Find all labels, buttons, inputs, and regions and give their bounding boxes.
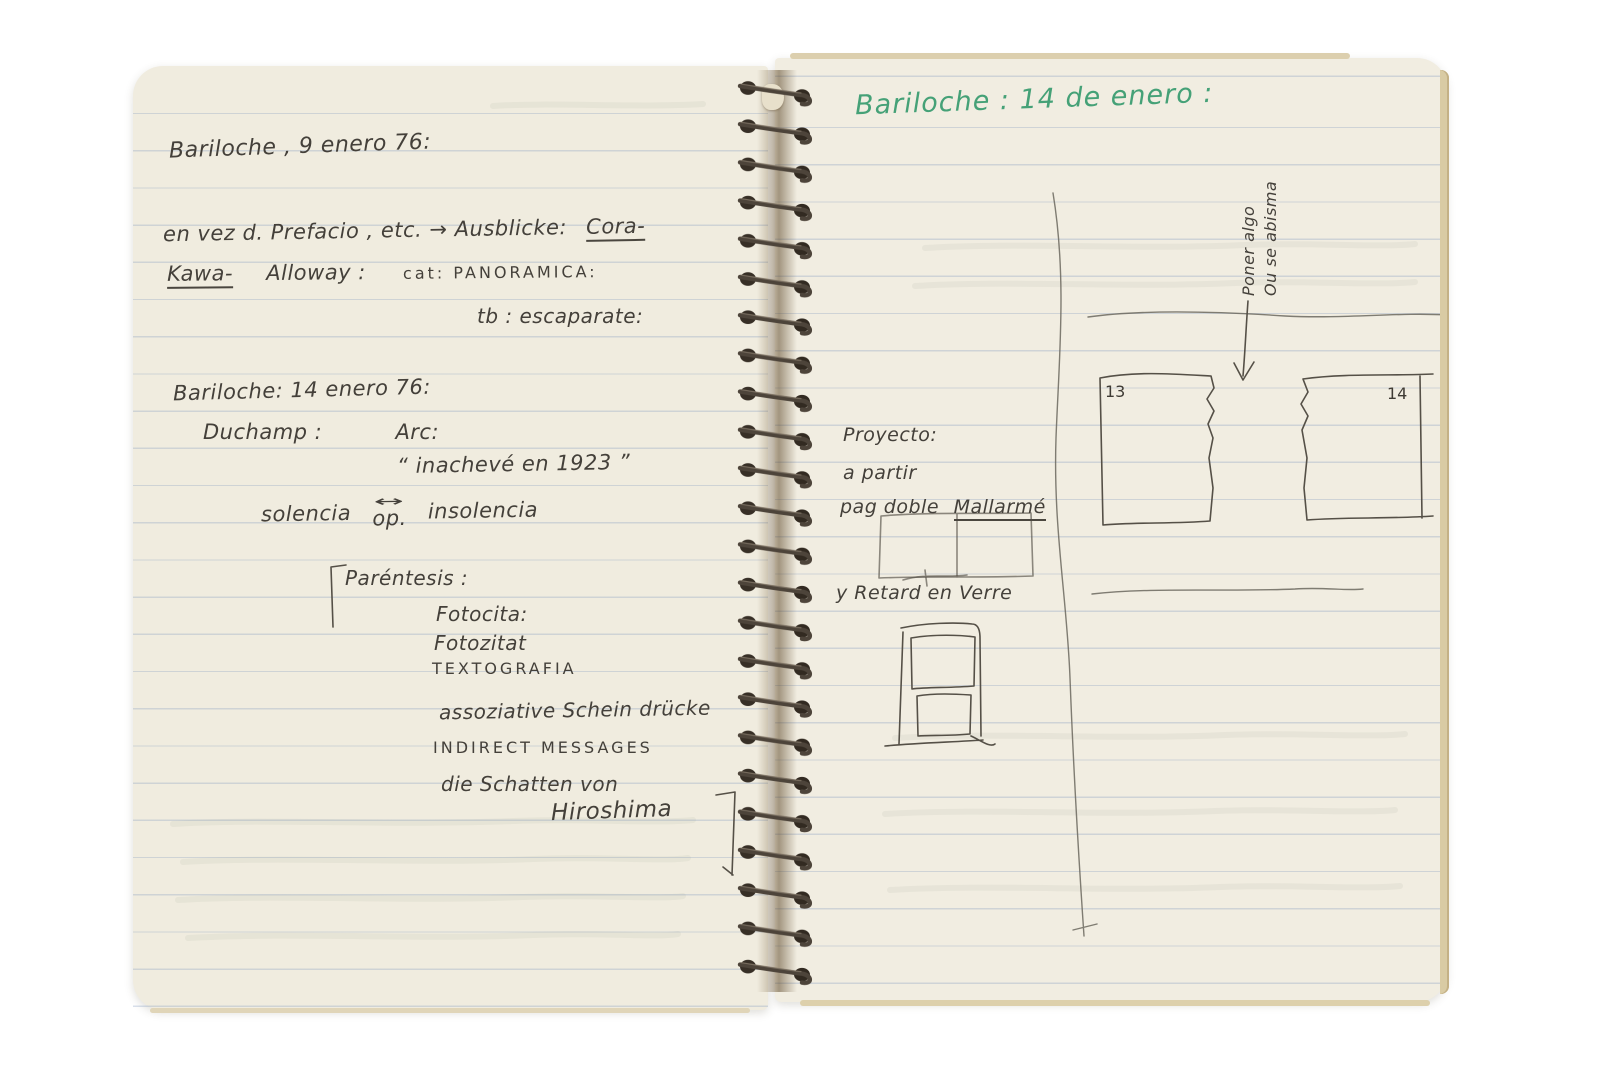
ghost-text-row	[890, 886, 1400, 890]
arc-word: Arc:	[395, 420, 439, 444]
ghost-text-row	[885, 810, 1395, 814]
large-glass-sketch	[885, 623, 995, 746]
rotated-note-line2: Ou se abisma	[1260, 116, 1282, 296]
cora-word: Cora-	[586, 214, 646, 242]
left-page: Bariloche , 9 enero 76: en vez d. Prefac…	[133, 66, 768, 1010]
proyecto-note: Proyecto:	[843, 424, 937, 446]
textografia-note: TEXTOGRAFIA	[432, 659, 577, 678]
a-partir-note: a partir	[843, 462, 917, 484]
pag-doble-words: pag doble	[840, 496, 939, 518]
inacheve-quote: “ inachevé en 1923 ”	[397, 450, 631, 478]
rotated-margin-note: Poner algo Ou se abisma	[1238, 116, 1282, 296]
page-stack-edge-bottom-right	[800, 1000, 1430, 1006]
parentesis-note: Paréntesis :	[345, 566, 468, 590]
duchamp-note: Duchamp : Arc:	[203, 420, 439, 444]
horizontal-line-mid-sketch	[1092, 588, 1363, 594]
page-stack-edge-right	[1440, 70, 1449, 994]
right-page-sketches	[775, 58, 1447, 1006]
vertical-divider-sketch	[1053, 193, 1097, 936]
kawa-word: Kawa-	[167, 261, 233, 289]
page-13-label: 13	[1105, 382, 1125, 401]
schatten-note: die Schatten von	[441, 772, 618, 796]
solencia-note: solencia ↔ op. insolencia	[261, 494, 539, 533]
double-arrow-icon: ↔	[373, 496, 405, 507]
rotated-note-line1: Poner algo	[1238, 116, 1260, 296]
op-with-arrow: ↔ op.	[372, 496, 407, 531]
spiral-binding	[726, 74, 821, 986]
right-page: Bariloche : 14 de enero : Poner algo Ou …	[775, 58, 1447, 1002]
escaparate-note: tb : escaparate:	[477, 304, 643, 328]
indirect-messages-note: INDIRECT MESSAGES	[433, 738, 653, 757]
solencia-word: solencia	[261, 501, 352, 527]
page-14-label: 14	[1387, 384, 1407, 403]
page-stack-edge-bottom-left	[150, 1008, 750, 1013]
mallarme-word: Mallarmé	[954, 496, 1046, 521]
pag-doble-note: pag doble Mallarmé	[840, 496, 1046, 518]
retard-note: y Retard en Verre	[836, 582, 1012, 604]
insolencia-word: insolencia	[428, 498, 539, 524]
assoziative-note: assoziative Schein drücke	[439, 696, 711, 725]
left-page-sketches	[133, 66, 768, 1014]
ghost-text-row	[188, 934, 678, 938]
spiral-coils	[726, 74, 821, 986]
ghost-text-row	[493, 104, 703, 106]
alloway-word: Alloway :	[266, 260, 366, 285]
ghost-text-row	[183, 858, 688, 862]
fotozitat-note: Fotozitat	[434, 631, 526, 655]
horizontal-line-top-sketch	[1088, 312, 1447, 317]
ghost-text-row	[178, 896, 683, 900]
panoramica-note: cat: PANORAMICA:	[403, 262, 598, 283]
page-stack-edge-top-right	[790, 53, 1350, 59]
double-page-spread-sketch	[879, 513, 1033, 578]
ghost-text-row	[915, 282, 1415, 286]
fotocita-note: Fotocita:	[436, 602, 528, 626]
ghost-text-row	[925, 244, 1415, 248]
open-bracket-sketch	[331, 565, 346, 627]
hiroshima-note: Hiroshima	[551, 796, 673, 826]
duchamp-word: Duchamp :	[203, 420, 322, 444]
page-14-rectangle-sketch	[1301, 374, 1433, 520]
kawa-alloway-note: Kawa- Alloway : cat: PANORAMICA:	[167, 258, 598, 286]
